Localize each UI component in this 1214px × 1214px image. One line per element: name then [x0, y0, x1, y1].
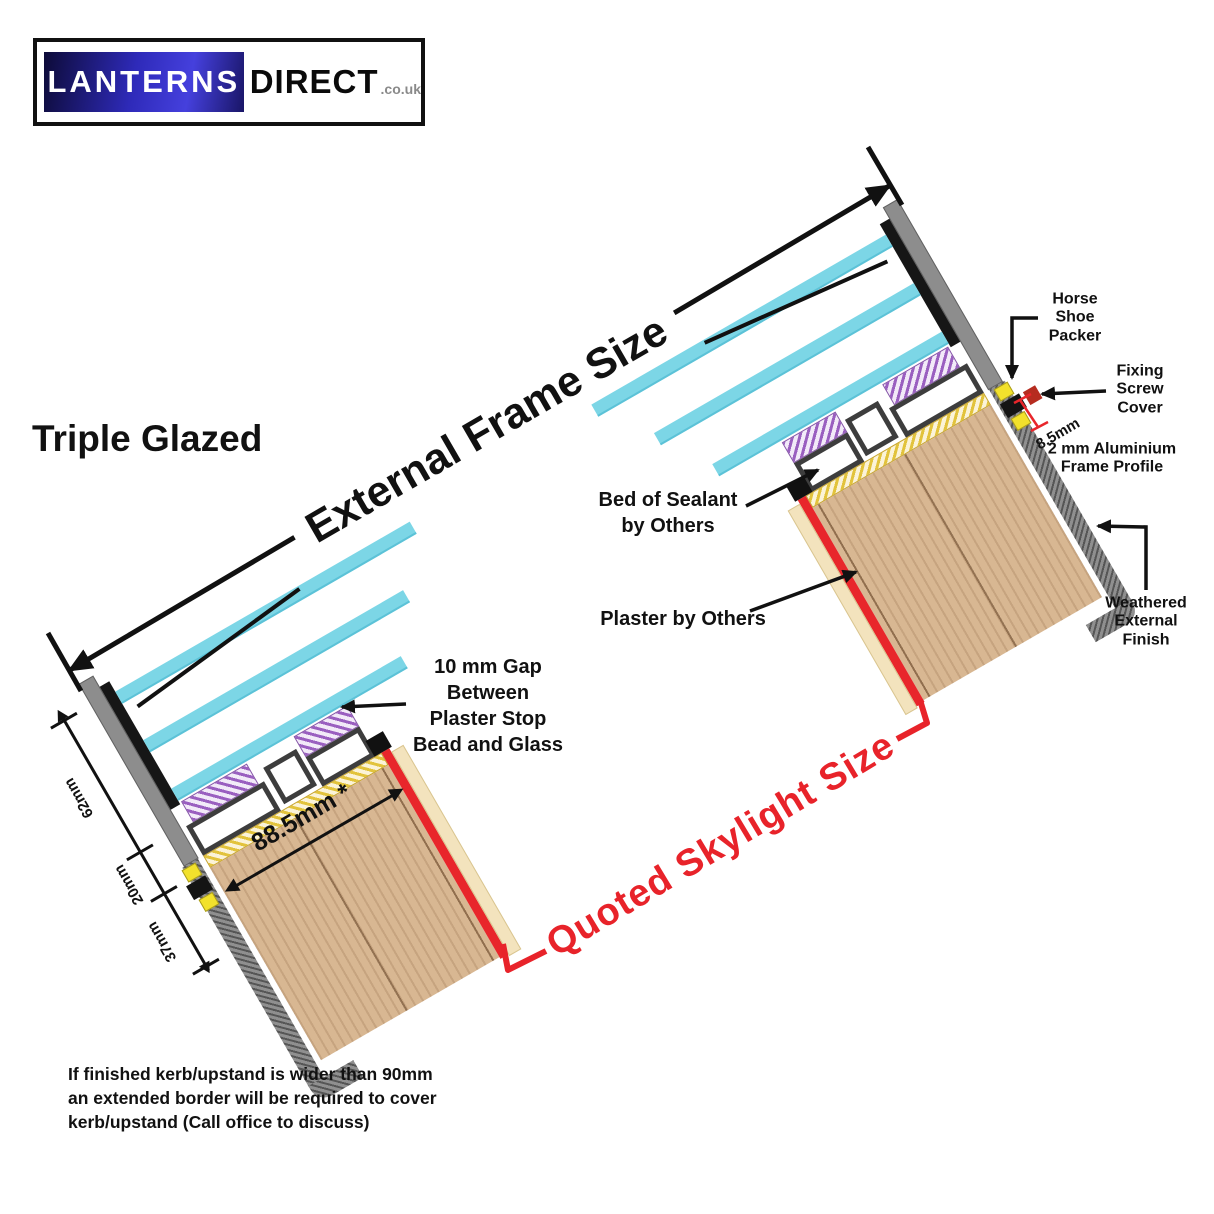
- logo-brand-secondary: DIRECT: [250, 63, 379, 101]
- logo-brand-primary: LANTERNS: [47, 64, 240, 100]
- glass-edge-line: [136, 587, 300, 708]
- weathered-external-finish-label: Weathered External Finish: [1105, 594, 1187, 649]
- skylight-install-diagram: { "logo": { "brand_primary": "LANTERNS",…: [0, 0, 1214, 1214]
- horse-shoe-packer-label: Horse Shoe Packer: [1049, 290, 1102, 345]
- dimension-tick: [150, 885, 177, 903]
- glazing-type-title: Triple Glazed: [32, 418, 262, 460]
- quoted-skylight-size-label: Quoted Skylight Size: [539, 724, 902, 966]
- dimension-end-tick: [48, 633, 81, 691]
- dimension-end-tick: [868, 147, 902, 205]
- plaster-gap-leader-arrow: [342, 704, 406, 707]
- aluminium-frame-profile-label: 2 mm Aluminium Frame Profile: [1048, 441, 1176, 478]
- logo-blue-panel: LANTERNS: [44, 52, 244, 112]
- dimension-tick: [126, 844, 153, 862]
- bed-of-sealant-label: Bed of Sealant by Others: [599, 487, 738, 539]
- plaster-gap-label: 10 mm Gap Between Plaster Stop Bead and …: [413, 654, 563, 758]
- fixing-screw-cover-detail: [1023, 385, 1043, 405]
- glass-edge-line: [704, 260, 888, 345]
- plaster-by-others-label: Plaster by Others: [600, 606, 766, 632]
- lanterns-direct-logo: LANTERNS DIRECT .co.uk: [33, 38, 425, 126]
- logo-brand-suffix: .co.uk: [381, 81, 421, 97]
- kerb-width-footnote: If finished kerb/upstand is wider than 9…: [68, 1062, 437, 1134]
- fixing-screw-cover-leader-arrow: [1042, 391, 1106, 394]
- horse-shoe-packer-leader-arrow: [1012, 318, 1038, 378]
- fixing-screw-cover-label: Fixing Screw Cover: [1116, 362, 1163, 417]
